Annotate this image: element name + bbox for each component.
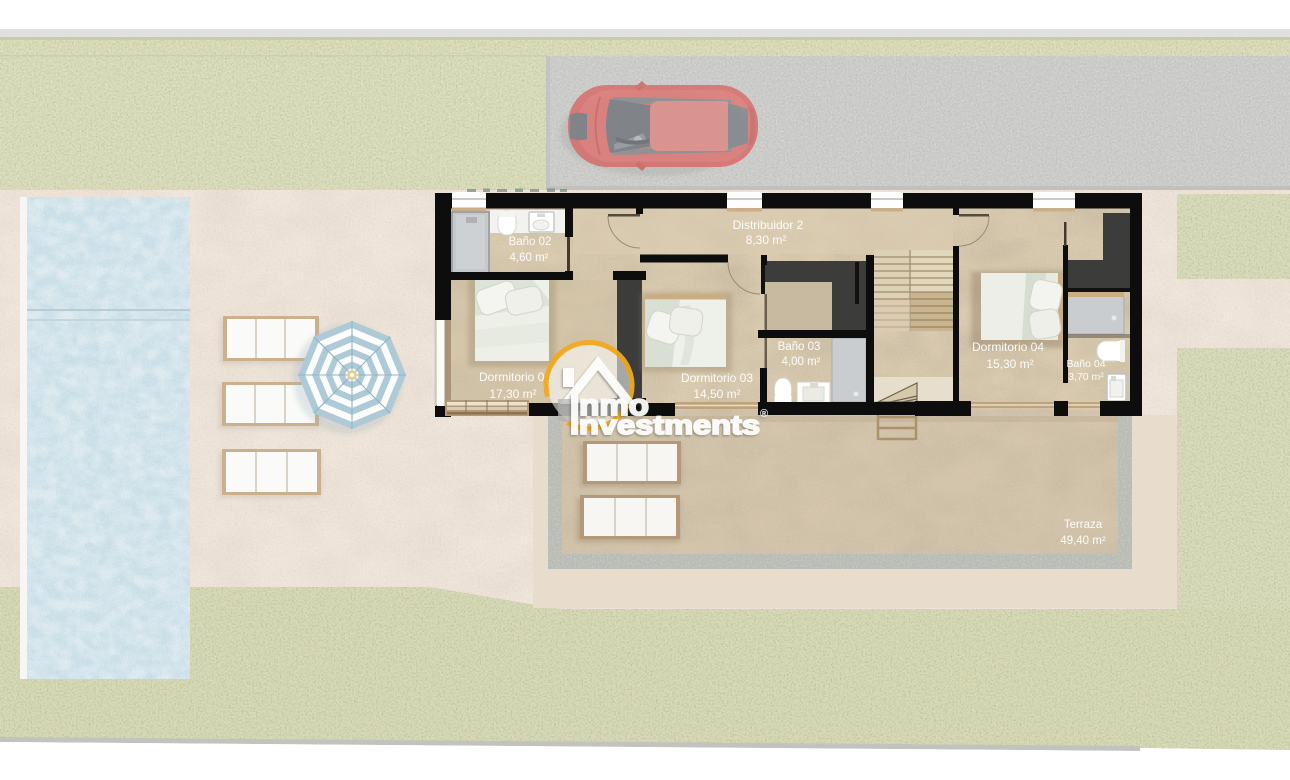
svg-text:®: ® — [760, 408, 768, 420]
svg-text:4,00 m²: 4,00 m² — [782, 356, 821, 368]
svg-text:Baño 02: Baño 02 — [509, 236, 552, 248]
svg-text:8,30 m²: 8,30 m² — [746, 233, 787, 247]
svg-text:Terraza: Terraza — [1064, 519, 1103, 531]
svg-text:4,60 m²: 4,60 m² — [510, 252, 549, 264]
svg-text:Investments: Investments — [570, 410, 760, 440]
svg-text:Baño 04: Baño 04 — [1066, 358, 1105, 370]
svg-text:Dormitorio 02: Dormitorio 02 — [479, 370, 551, 384]
svg-text:49,40 m²: 49,40 m² — [1060, 535, 1106, 547]
svg-text:Dormitorio 04: Dormitorio 04 — [972, 340, 1044, 354]
svg-text:Baño 03: Baño 03 — [778, 341, 821, 353]
svg-text:Dormitorio 03: Dormitorio 03 — [681, 371, 753, 385]
svg-text:3,70 m²: 3,70 m² — [1068, 371, 1104, 383]
svg-text:17,30 m²: 17,30 m² — [489, 387, 536, 401]
svg-text:14,50 m²: 14,50 m² — [693, 387, 740, 401]
svg-text:15,30 m²: 15,30 m² — [986, 357, 1033, 371]
svg-text:Distribuidor 2: Distribuidor 2 — [733, 218, 804, 232]
